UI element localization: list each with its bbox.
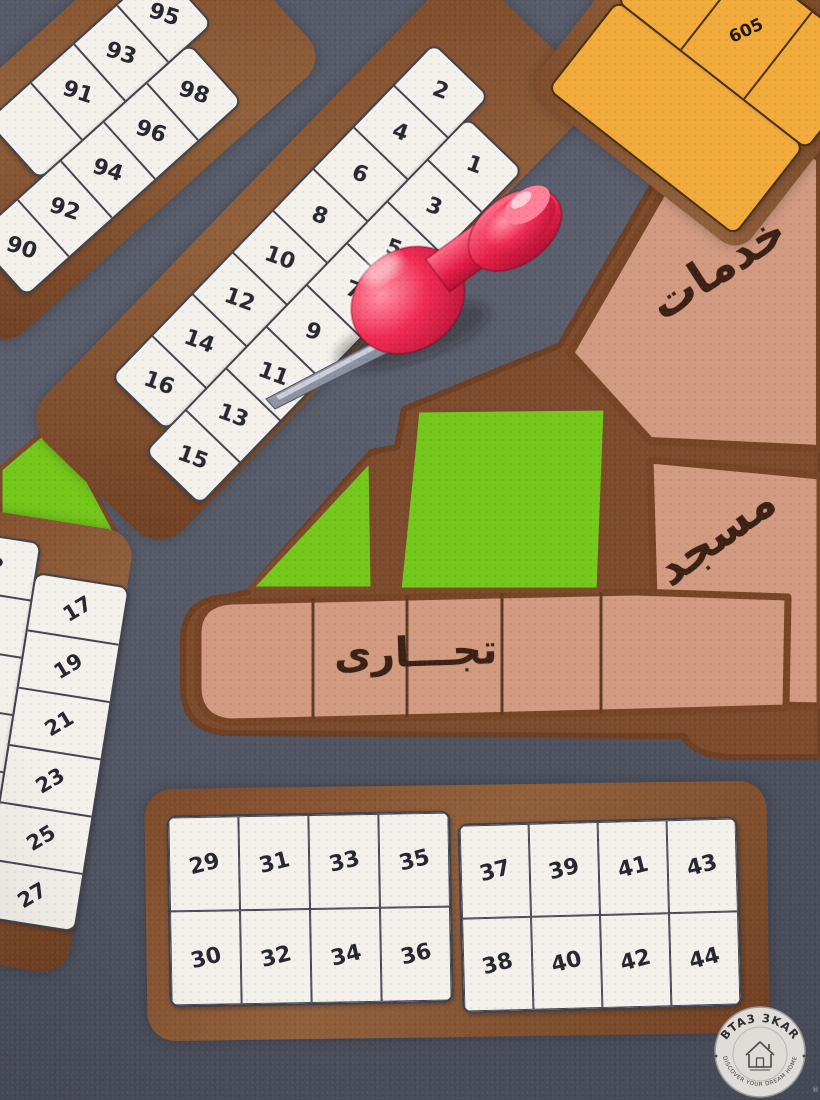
badge-inner-circle (733, 1027, 787, 1081)
plot-number: 91 (60, 75, 97, 108)
park-green-triangle (250, 459, 373, 589)
plot-number: 21 (41, 706, 78, 742)
plot-number: 16 (140, 366, 177, 400)
registered-mark: ® (812, 1086, 819, 1094)
plot-cell: 39 (529, 822, 600, 917)
plot-number: 1 (463, 151, 486, 180)
plot-number: 605 (726, 14, 767, 47)
plot-number: 42 (618, 945, 654, 977)
plot-number: 98 (176, 76, 213, 109)
commercial-area-label: تجـــارى (297, 624, 534, 680)
plot-cell: 38 (462, 917, 533, 1012)
plot-number: 15 (174, 440, 211, 474)
plot-number: 37 (477, 855, 513, 887)
park-green-central (399, 408, 606, 590)
plot-cell: 33 (308, 814, 380, 909)
plot-cell: 29 (168, 816, 240, 911)
plot-number: 3 (423, 193, 446, 222)
plot-cell: 37 (460, 824, 531, 919)
plot-cell: 36 (380, 907, 452, 1002)
plot-number: 90 (3, 231, 40, 264)
plot-block-29-36: 2931333530323436 (166, 811, 453, 1008)
plot-block-17-27: 18 171921232527 (0, 527, 135, 932)
plot-number: 6 (349, 160, 372, 189)
plot-cell: 43 (667, 818, 738, 913)
plot-number: 34 (328, 940, 364, 972)
plot-cell: 32 (240, 909, 312, 1004)
plot-cell: 42 (600, 913, 671, 1008)
plot-number: 10 (261, 241, 298, 275)
watermark-badge: BTA3 3KAR DISCOVER YOUR DREAM HOME ® (700, 1004, 820, 1100)
plot-cell: 41 (598, 820, 669, 915)
plot-cell: 34 (310, 908, 382, 1003)
plot-number: 9 (302, 318, 325, 347)
plot-number: 43 (684, 850, 720, 882)
plot-number: 8 (309, 202, 332, 231)
plot-number: 35 (396, 844, 432, 876)
plot-number: 92 (46, 192, 83, 225)
plot-number: 27 (14, 878, 51, 914)
pin-cap-highlight (508, 188, 534, 212)
plot-number: 41 (615, 852, 651, 884)
plot-number: 7 (343, 276, 366, 305)
mosque-area-label: مسجد (629, 462, 802, 609)
plot-number: 94 (90, 153, 127, 186)
plot-cell: 40 (531, 915, 602, 1010)
plot-block-37-44: 3739414338404244 (458, 816, 743, 1013)
plot-number: 12 (221, 282, 258, 316)
plot-number: 38 (480, 948, 516, 980)
plot-number: 32 (258, 941, 294, 973)
plot-number: 5 (383, 234, 406, 263)
plot-cell: 35 (378, 813, 450, 908)
plot-number: 36 (398, 938, 434, 970)
plot-number: 14 (181, 324, 218, 358)
plot-number: 29 (186, 848, 222, 880)
plot-number: 2 (430, 76, 453, 105)
plot-number: 13 (215, 399, 252, 433)
plot-number: 33 (326, 846, 362, 878)
plot-cell: 31 (238, 815, 310, 910)
plot-number: 25 (23, 820, 60, 856)
plot-cell: 30 (170, 910, 242, 1005)
plot-number: 23 (32, 763, 69, 799)
plot-cell: 44 (669, 911, 740, 1006)
plot-number: 95 (146, 0, 183, 31)
plot-number: 19 (50, 648, 87, 684)
plot-number: 18 (0, 547, 8, 583)
plot-number: 40 (549, 946, 585, 978)
plot-number: 96 (133, 115, 170, 148)
plot-number: 4 (389, 118, 412, 147)
plot-number: 30 (188, 942, 224, 974)
plot-number: 39 (546, 853, 582, 885)
plot-number: 31 (256, 847, 292, 879)
plot-number: 11 (255, 357, 292, 391)
plot-number: 17 (59, 591, 96, 627)
plot-number: 44 (687, 943, 723, 975)
plot-map: 959391 9896949290 246810121416 135791113… (0, 0, 820, 1100)
plot-number: 93 (103, 37, 140, 70)
